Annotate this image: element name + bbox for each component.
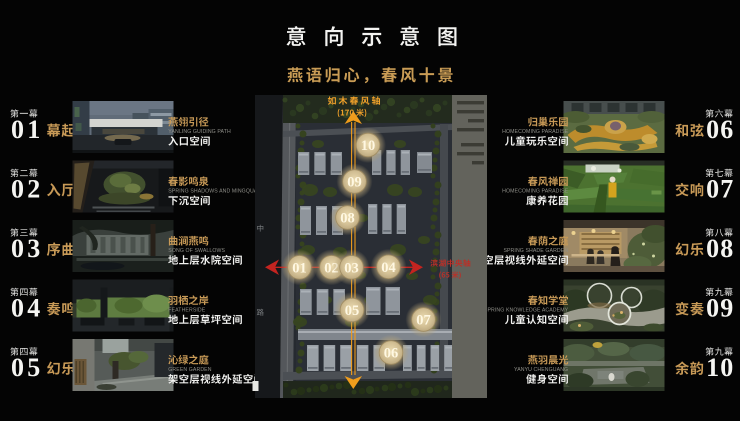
svg-text:03: 03 <box>344 260 359 276</box>
svg-text:FEATHERSIDE: FEATHERSIDE <box>168 308 205 314</box>
svg-text:03: 03 <box>11 234 43 263</box>
svg-text:06: 06 <box>706 115 734 144</box>
svg-text:SONG OF SWALLOWS: SONG OF SWALLOWS <box>168 248 225 254</box>
svg-text:09: 09 <box>347 175 362 191</box>
svg-text:10: 10 <box>706 353 734 382</box>
svg-text:07: 07 <box>706 175 734 204</box>
svg-text:SPRING SHADE GARDEN: SPRING SHADE GARDEN <box>503 248 568 254</box>
svg-text:04: 04 <box>11 294 43 323</box>
svg-text:SPRING KNOWLEDGE ACADEMY: SPRING KNOWLEDGE ACADEMY <box>484 308 569 314</box>
svg-text:01: 01 <box>292 260 307 276</box>
svg-text:HOMECOMING PARADISE: HOMECOMING PARADISE <box>502 189 569 195</box>
svg-text:02: 02 <box>11 175 43 204</box>
svg-text:08: 08 <box>340 211 355 227</box>
svg-text:07: 07 <box>416 313 431 329</box>
svg-text:06: 06 <box>384 346 399 362</box>
svg-text:SPRING SHADOWS AND MINGQUAN: SPRING SHADOWS AND MINGQUAN <box>168 189 261 195</box>
svg-text:05: 05 <box>11 353 43 382</box>
svg-text:YANYU CHENGUANG: YANYU CHENGUANG <box>514 367 568 373</box>
svg-text:GREEN GARDEN: GREEN GARDEN <box>168 367 211 373</box>
svg-text:08: 08 <box>706 234 734 263</box>
svg-text:10: 10 <box>361 138 376 154</box>
svg-text:YANLING GUIDING PATH: YANLING GUIDING PATH <box>168 129 231 135</box>
svg-text:05: 05 <box>345 303 360 319</box>
svg-text:04: 04 <box>381 260 396 276</box>
svg-text:01: 01 <box>11 115 43 144</box>
svg-text:HOMECOMING PARADISE: HOMECOMING PARADISE <box>502 129 569 135</box>
svg-text:09: 09 <box>706 294 734 323</box>
